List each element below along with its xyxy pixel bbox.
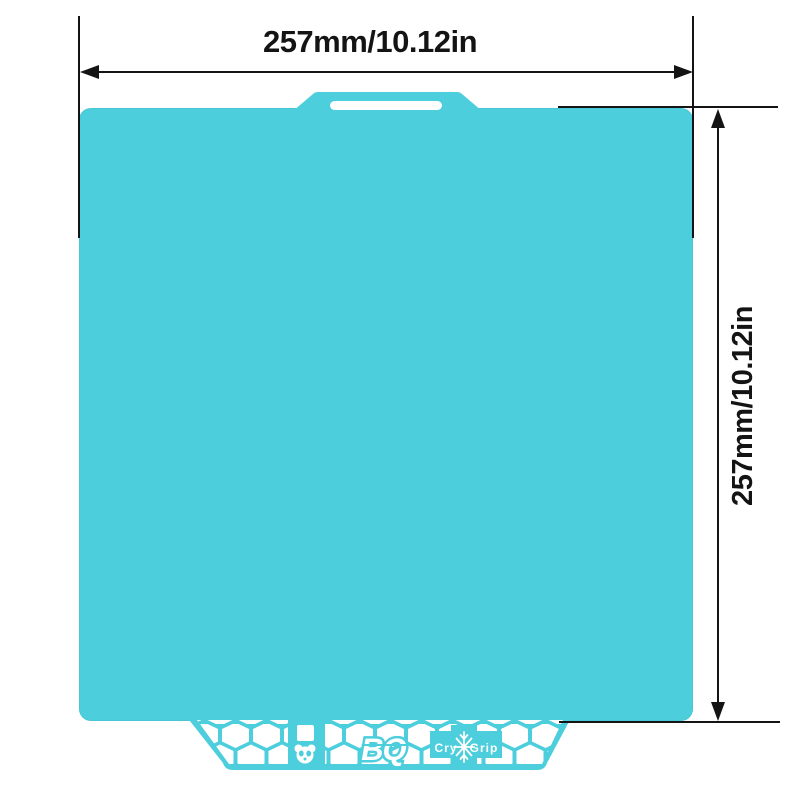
biqu-logo-text: BQ <box>359 732 410 767</box>
extension-line-left <box>78 16 80 238</box>
height-dimension-label: 257mm/10.12in <box>727 186 765 626</box>
extension-line-bottom-right <box>559 721 780 723</box>
arrow-down-icon <box>711 702 725 721</box>
extension-line-right <box>692 16 694 238</box>
width-dimension-line <box>98 71 675 73</box>
product-dimension-diagram: 257mm/10.12in 257mm/10.12in <box>0 0 800 800</box>
logo-slit <box>361 744 407 746</box>
biqu-logo: BQ <box>358 732 410 767</box>
handle-slot <box>330 101 442 110</box>
extension-line-top-right <box>558 106 778 108</box>
width-dimension-label: 257mm/10.12in <box>150 24 590 60</box>
top-mounting-tab <box>290 88 486 114</box>
arrow-up-icon <box>711 109 725 128</box>
brand-text-grip: Grip <box>470 741 499 755</box>
arrow-right-icon <box>674 65 693 79</box>
bottom-hexagon-tab: BQ Cry Grip <box>185 716 585 774</box>
brand-text-cry: Cry <box>434 741 457 755</box>
build-plate <box>79 108 693 721</box>
height-dimension-line <box>717 126 719 703</box>
arrow-left-icon <box>80 65 99 79</box>
square-cutout-icon <box>297 725 314 741</box>
